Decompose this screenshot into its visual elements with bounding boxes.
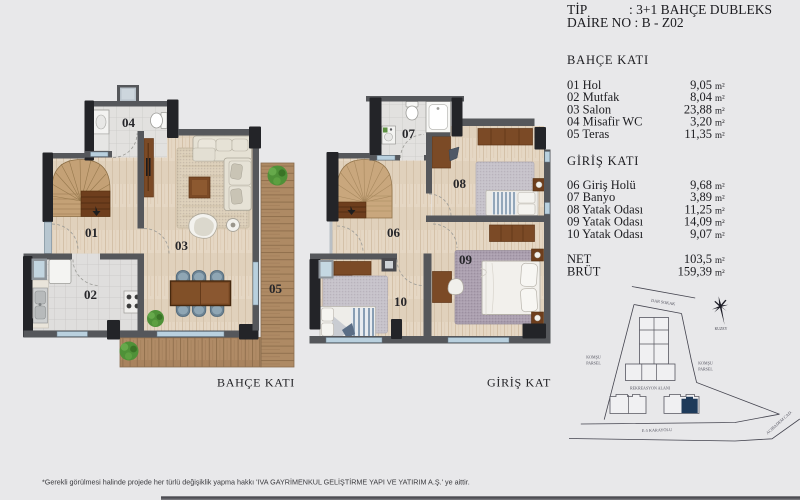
svg-text:10 Yatak Odası: 10 Yatak Odası xyxy=(567,227,644,241)
svg-text:07: 07 xyxy=(402,126,416,141)
svg-text:PARSEL: PARSEL xyxy=(586,361,601,366)
svg-text:m²: m² xyxy=(715,105,725,115)
svg-text:PARSEL: PARSEL xyxy=(698,367,713,372)
svg-text:08: 08 xyxy=(453,176,467,191)
svg-text:REKREASYON ALANI: REKREASYON ALANI xyxy=(630,386,671,391)
svg-text:m²: m² xyxy=(715,93,725,103)
svg-text:04: 04 xyxy=(122,115,136,130)
svg-text:06: 06 xyxy=(387,225,401,240)
svg-text:01: 01 xyxy=(85,225,98,240)
svg-text:m²: m² xyxy=(715,81,725,91)
svg-text:02: 02 xyxy=(84,287,97,302)
svg-text:09: 09 xyxy=(459,252,473,267)
svg-text:9,07: 9,07 xyxy=(690,227,712,241)
svg-text:m²: m² xyxy=(715,218,725,228)
svg-text:m²: m² xyxy=(715,230,725,240)
svg-text:10: 10 xyxy=(394,294,407,309)
svg-text:05 Teras: 05 Teras xyxy=(567,127,609,141)
svg-text:DAİRE NO : B - Z02: DAİRE NO : B - Z02 xyxy=(567,15,684,30)
svg-text:05: 05 xyxy=(269,281,283,296)
svg-text:m²: m² xyxy=(715,255,725,265)
svg-text:m²: m² xyxy=(715,268,725,278)
svg-text:m²: m² xyxy=(715,193,725,203)
svg-text:BRÜT: BRÜT xyxy=(567,265,601,279)
svg-text:BAHÇE KATI: BAHÇE KATI xyxy=(217,376,295,390)
svg-text:KOMŞU: KOMŞU xyxy=(698,361,713,366)
svg-text:*Gerekli görülmesi halinde pro: *Gerekli görülmesi halinde projede her t… xyxy=(42,478,470,487)
svg-text:BAHÇE KATI: BAHÇE KATI xyxy=(567,53,649,67)
svg-text:11,35: 11,35 xyxy=(684,127,712,141)
svg-text:03: 03 xyxy=(175,238,189,253)
svg-text:GİRİŞ KATI: GİRİŞ KATI xyxy=(567,154,639,168)
svg-text:m²: m² xyxy=(715,130,725,140)
svg-text:m²: m² xyxy=(715,181,725,191)
svg-text:m²: m² xyxy=(715,205,725,215)
svg-text:159,39: 159,39 xyxy=(678,265,712,279)
svg-text:KOMŞU: KOMŞU xyxy=(586,355,601,360)
svg-text:E-5 KARAYOLU: E-5 KARAYOLU xyxy=(642,427,672,433)
svg-text:GİRİŞ KAT: GİRİŞ KAT xyxy=(487,376,551,390)
svg-text:m²: m² xyxy=(715,118,725,128)
svg-text:KUZEY: KUZEY xyxy=(715,327,728,331)
